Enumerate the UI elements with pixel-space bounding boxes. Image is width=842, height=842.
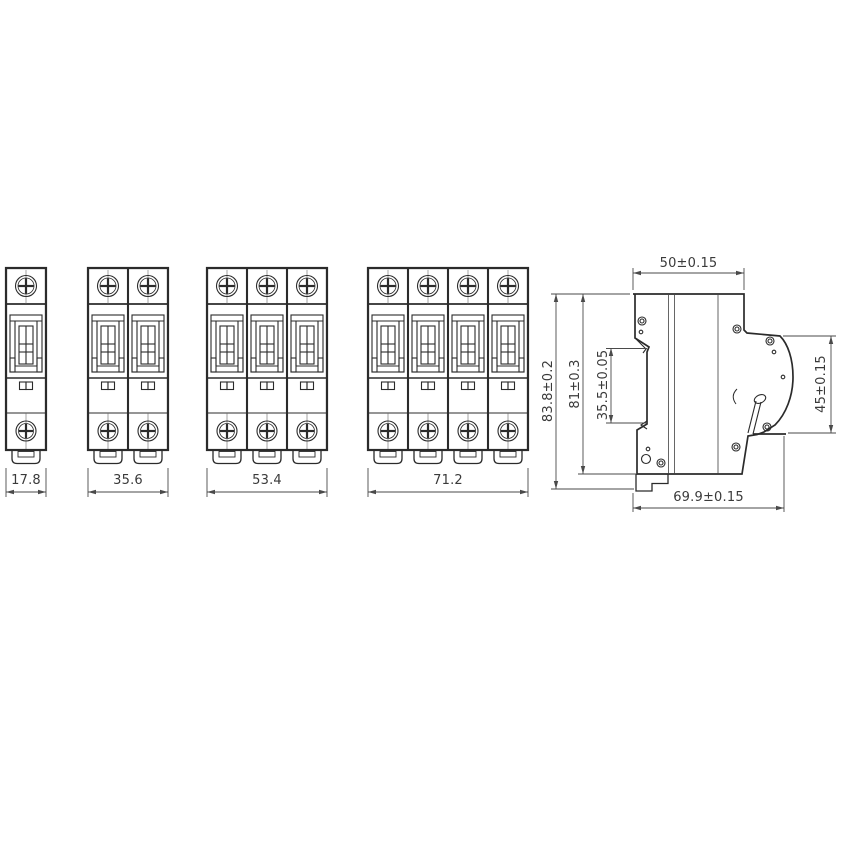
drawing-linework [0,0,842,842]
dimension-drawing: 17.8 35.6 53.4 71.2 50±0.15 69.9±0.15 83… [0,0,842,842]
dim-label-top-width: 50±0.15 [633,257,744,271]
dim-label-body-height: 81±0.3 [569,359,583,408]
dim-label-din-slot-height: 35.5±0.05 [597,350,611,421]
front-view-4-pole [368,268,528,497]
side-view-profile [633,294,793,491]
dim-label-front-face-height: 45±0.15 [815,355,829,413]
dim-label-overall-height: 83.8±0.2 [542,360,556,422]
dim-label-overall-depth: 69.9±0.15 [633,491,784,505]
front-view-3-pole [207,268,327,497]
front-view-2-pole [88,268,168,497]
side-view-rivets [638,317,785,467]
dim-label-width-2-pole: 35.6 [88,474,168,488]
side-view-dimensions [551,268,836,512]
front-view-1-pole [6,268,46,497]
dim-label-width-4-pole: 71.2 [368,474,528,488]
dim-label-width-3-pole: 53.4 [207,474,327,488]
dim-label-width-1-pole: 17.8 [6,474,46,488]
